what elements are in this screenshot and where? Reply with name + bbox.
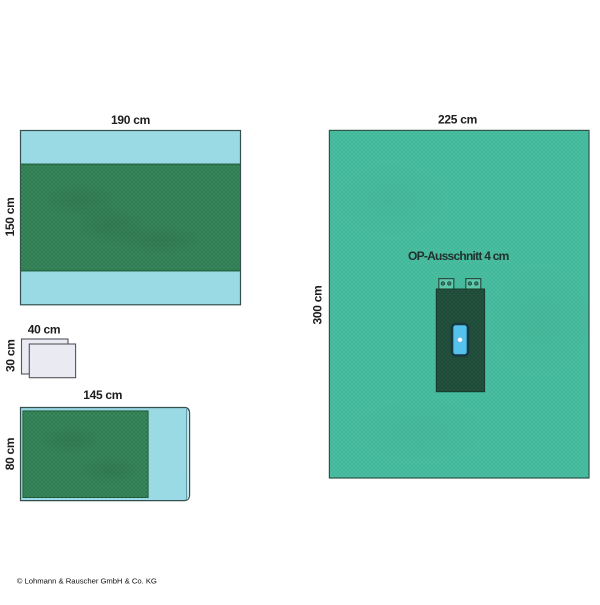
svg-text:190 cm: 190 cm (111, 113, 150, 127)
svg-text:30 cm: 30 cm (3, 339, 17, 372)
svg-text:300 cm: 300 cm (310, 286, 324, 325)
svg-text:OP-Ausschnitt 4 cm: OP-Ausschnitt 4 cm (408, 249, 509, 263)
svg-text:80 cm: 80 cm (3, 438, 17, 471)
svg-text:150 cm: 150 cm (3, 198, 17, 237)
svg-text:© Lohmann & Rauscher GmbH & Co: © Lohmann & Rauscher GmbH & Co. KG (17, 576, 157, 585)
svg-text:145 cm: 145 cm (83, 388, 122, 402)
svg-text:225 cm: 225 cm (438, 112, 477, 126)
svg-text:40 cm: 40 cm (28, 323, 61, 337)
